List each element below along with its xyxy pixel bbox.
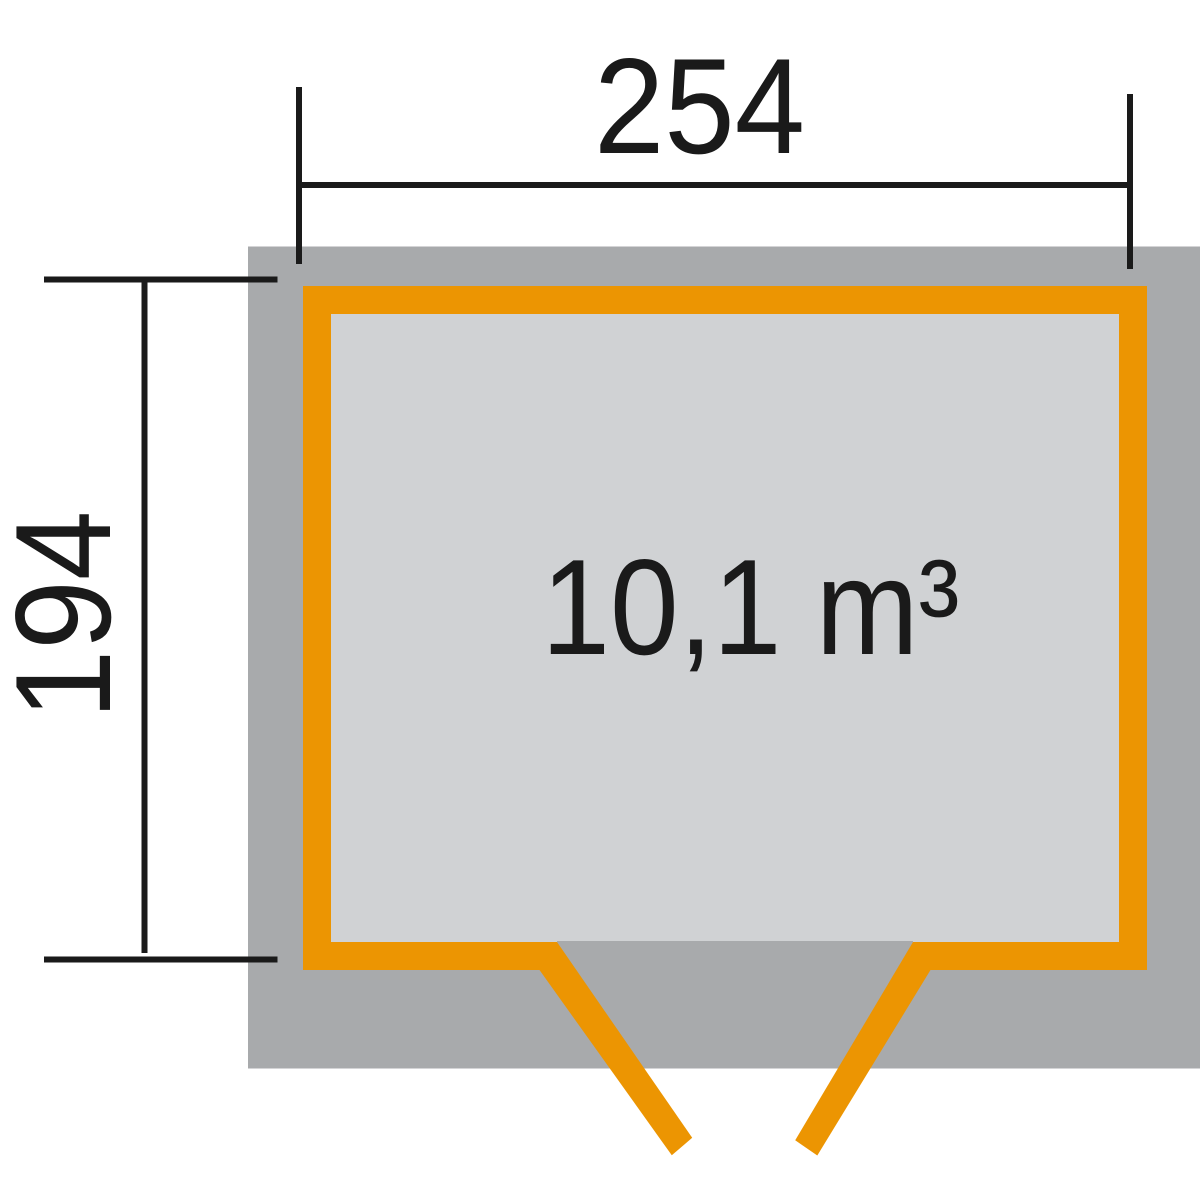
svg-text:194: 194 <box>0 511 139 720</box>
svg-text:254: 254 <box>594 30 805 182</box>
svg-text:10,1 m³: 10,1 m³ <box>541 530 959 683</box>
